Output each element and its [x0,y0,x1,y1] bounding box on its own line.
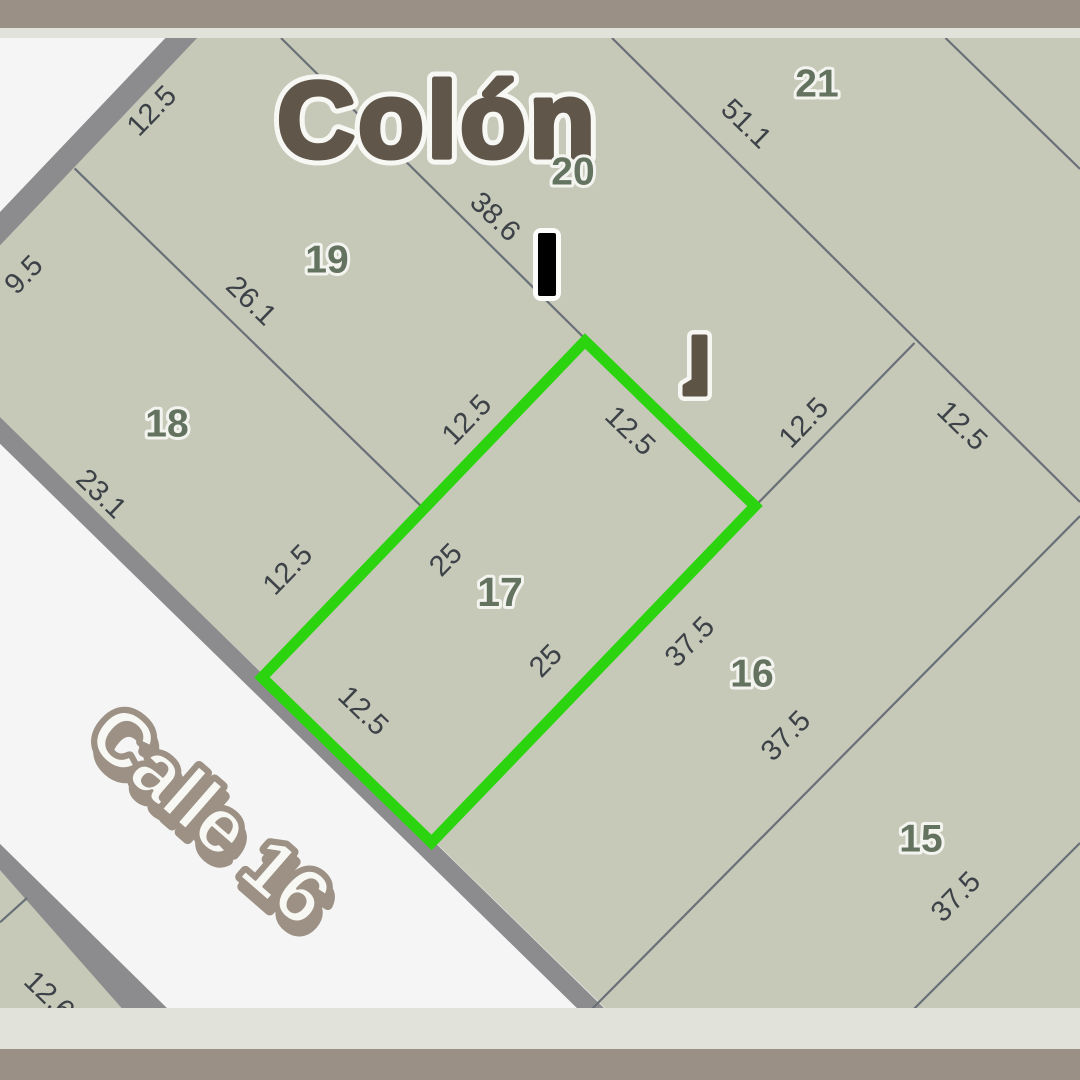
svg-text:15: 15 [899,817,942,860]
svg-text:21: 21 [795,62,838,105]
svg-text:19: 19 [305,238,348,281]
svg-text:16: 16 [730,652,773,695]
svg-text:Colón: Colón [277,59,598,180]
svg-text:17: 17 [477,569,523,615]
svg-text:20: 20 [551,150,594,193]
svg-text:18: 18 [145,402,188,445]
